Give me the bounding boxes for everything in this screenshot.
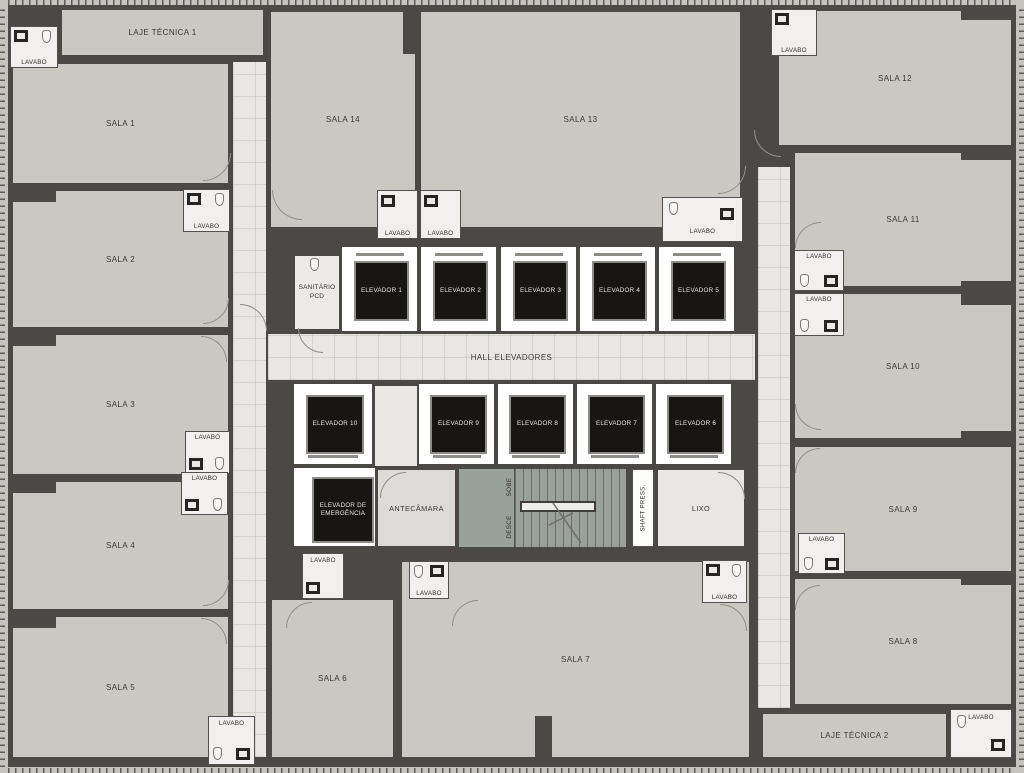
corridor-left	[233, 62, 266, 757]
room-label: SALA 1	[106, 119, 135, 128]
elevator-back-wall	[515, 253, 563, 256]
elevator-1-shaft: ELEVADOR 1	[342, 247, 417, 331]
sink-icon	[706, 564, 720, 576]
lavabo-sala-5: LAVABO	[208, 716, 255, 765]
elevator-back-wall	[673, 253, 721, 256]
elevator-back-wall	[435, 253, 483, 256]
sink-icon	[775, 13, 789, 25]
room-label: SALA 4	[106, 541, 135, 550]
lavabo-sala-4: LAVABO	[181, 472, 228, 515]
toilet-icon	[414, 565, 423, 578]
elevator-1-cab: ELEVADOR 1	[354, 261, 409, 321]
elevator-5-shaft: ELEVADOR 5	[659, 247, 734, 331]
room-laje-tecnica-2: LAJE TÉCNICA 2	[763, 714, 946, 757]
lavabo-label: LAVABO	[410, 590, 448, 597]
room-label: SALA 5	[106, 683, 135, 692]
toilet-icon	[732, 564, 741, 577]
elevator-10-shaft: ELEVADOR 10	[294, 384, 372, 464]
elevator-back-wall	[512, 455, 560, 458]
elevator-label: ELEVADOR 5	[678, 287, 719, 295]
elevator-8-cab: ELEVADOR 8	[509, 395, 566, 454]
toilet-icon	[213, 747, 222, 760]
room-label: SALA 13	[564, 115, 598, 124]
elevator-back-wall	[356, 253, 404, 256]
elevator-label: ELEVADOR 2	[440, 287, 481, 295]
elevator-label: ELEVADOR 3	[520, 287, 561, 295]
lavabo-label: LAVABO	[772, 47, 816, 54]
lavabo-label: LAVABO	[799, 536, 844, 543]
room-label: SALA 14	[326, 115, 360, 124]
room-label: SALA 2	[106, 255, 135, 264]
sink-icon	[381, 195, 395, 207]
stair-direction-arrow	[547, 499, 593, 545]
room-label: SALA 6	[318, 674, 347, 683]
room-label: SALA 9	[888, 505, 917, 514]
lavabo-label: LAVABO	[184, 223, 229, 230]
wall-stub	[961, 281, 1013, 305]
sink-icon	[189, 458, 203, 470]
wall-stub	[8, 5, 58, 27]
elevator-8-shaft: ELEVADOR 8	[498, 384, 573, 464]
elevator-10-cab: ELEVADOR 10	[306, 395, 364, 454]
room-label: HALL ELEVADORES	[471, 353, 553, 362]
stair-down-label: DESCE	[506, 512, 516, 542]
lavabo-sala-10: LAVABO	[794, 293, 844, 336]
elevator-label: ELEVADOR 9	[438, 420, 479, 428]
lavabo-label: LAVABO	[182, 475, 227, 482]
elevator-4-cab: ELEVADOR 4	[592, 261, 647, 321]
room-sala-13: SALA 13	[421, 12, 740, 227]
toilet-icon	[310, 258, 319, 271]
elevator-label: ELEVADOR 4	[599, 287, 640, 295]
sink-icon	[824, 320, 838, 332]
hall-elevadores: HALL ELEVADORES	[268, 334, 755, 380]
room-label: ANTECÂMARA	[389, 504, 444, 513]
sink-icon	[306, 582, 320, 594]
elevator-6-cab: ELEVADOR 6	[667, 395, 724, 454]
elevator-label: ELEVADOR 8	[517, 420, 558, 428]
room-sala-5: SALA 5	[13, 617, 228, 757]
toilet-icon	[800, 319, 809, 332]
wall-stub	[8, 186, 56, 202]
lavabo-sala-3: LAVABO	[185, 431, 230, 474]
lavabo-label: LAVABO	[209, 720, 254, 727]
room-label: SALA 11	[886, 215, 919, 224]
lavabo-sala-12: LAVABO	[771, 9, 817, 56]
lavabo-top-left: LAVABO	[10, 26, 58, 68]
elevator-label: ELEVADOR 10	[313, 420, 358, 428]
emergency-elevator-cab: ELEVADOR DEEMERGÊNCIA	[312, 477, 374, 543]
lavabo-label: LAVABO	[186, 434, 229, 441]
sink-icon	[430, 565, 444, 577]
wall-stub	[535, 716, 552, 760]
lavabo-sala-9: LAVABO	[798, 533, 845, 574]
elevator-7-cab: ELEVADOR 7	[588, 395, 645, 454]
elevator-label: ELEVADOR DEEMERGÊNCIA	[320, 502, 367, 518]
room-label: SALA 10	[886, 362, 920, 371]
wall-stub	[590, 548, 634, 562]
room-label: SALA 12	[878, 74, 912, 83]
elevator-back-wall	[433, 455, 481, 458]
floor-plan: LAJE TÉCNICA 1 SALA 1 SALA 2 SALA 3 SALA…	[0, 0, 1024, 773]
wall-stub	[8, 330, 56, 346]
elevator-label: ELEVADOR 6	[675, 420, 716, 428]
lavabo-label: LAVABO	[421, 230, 460, 237]
stair-up-label: SOBE	[506, 472, 516, 502]
lavabo-sala-2: LAVABO	[183, 189, 230, 232]
elevator-4-shaft: ELEVADOR 4	[580, 247, 655, 331]
wall-stub	[961, 571, 1013, 585]
room-laje-tecnica-1: LAJE TÉCNICA 1	[62, 10, 263, 55]
toilet-icon	[215, 457, 224, 470]
sink-icon	[720, 208, 734, 220]
lavabo-sala-14: LAVABO	[377, 190, 418, 239]
lavabo-sala-11: LAVABO	[794, 250, 844, 291]
toilet-icon	[213, 498, 222, 511]
toilet-icon	[215, 193, 224, 206]
sink-icon	[187, 193, 201, 205]
room-label: SALA 3	[106, 400, 135, 409]
room-label: LAJE TÉCNICA 1	[128, 28, 196, 37]
elevator-6-shaft: ELEVADOR 6	[656, 384, 731, 464]
lavabo-label: LAVABO	[703, 594, 746, 601]
lavabo-sala-7-left: LAVABO	[409, 561, 449, 599]
shaft-label: SHAFT PRESS.	[640, 485, 646, 532]
wall-stub	[961, 146, 1013, 160]
elevator-back-wall	[308, 455, 358, 458]
toilet-icon	[804, 557, 813, 570]
room-label: SANITÁRIOPCD	[299, 284, 336, 302]
lavabo-label: LAVABO	[378, 230, 417, 237]
elevator-7-shaft: ELEVADOR 7	[577, 384, 652, 464]
lavabo-label: LAVABO	[795, 253, 843, 260]
elevator-9-shaft: ELEVADOR 9	[419, 384, 494, 464]
room-label: LIXO	[692, 504, 710, 513]
elevator-back-wall	[670, 455, 718, 458]
hatch-left	[0, 5, 5, 767]
sink-icon	[185, 499, 199, 511]
elevator-label: ELEVADOR 1	[361, 287, 402, 295]
wall-stub	[8, 612, 56, 628]
elevator-5-cab: ELEVADOR 5	[671, 261, 726, 321]
elevator-2-shaft: ELEVADOR 2	[421, 247, 496, 331]
corridor-right	[758, 167, 790, 708]
lavabo-bottom-right: LAVABO	[950, 709, 1012, 758]
wall-stub	[8, 477, 56, 493]
stairwell: SOBE DESCE	[459, 469, 626, 547]
elevator-back-wall	[591, 455, 639, 458]
lavabo-sala-6: LAVABO	[302, 553, 344, 599]
room-label: SALA 8	[888, 637, 917, 646]
room-sala-8: SALA 8	[795, 579, 1011, 704]
lavabo-label: LAVABO	[663, 228, 742, 235]
sink-icon	[825, 558, 839, 570]
sink-icon	[991, 739, 1005, 751]
room-sala-7: SALA 7	[402, 562, 749, 757]
elevator-3-cab: ELEVADOR 3	[513, 261, 568, 321]
room-sala-1: SALA 1	[13, 64, 228, 183]
room-label: SALA 7	[561, 655, 590, 664]
wall-stub	[403, 8, 421, 54]
sink-icon	[236, 748, 250, 760]
elevator-back-wall	[594, 253, 642, 256]
sink-icon	[424, 195, 438, 207]
elevator-label: ELEVADOR 7	[596, 420, 637, 428]
elevator-2-cab: ELEVADOR 2	[433, 261, 488, 321]
room-label: LAJE TÉCNICA 2	[820, 731, 888, 740]
hatch-bottom	[8, 768, 1016, 773]
sink-icon	[14, 30, 28, 42]
elevator-3-shaft: ELEVADOR 3	[501, 247, 576, 331]
elevator-9-cab: ELEVADOR 9	[430, 395, 487, 454]
toilet-icon	[800, 274, 809, 287]
lavabo-label: LAVABO	[951, 714, 1011, 721]
sink-icon	[824, 275, 838, 287]
lavabo-label: LAVABO	[303, 557, 343, 564]
emergency-elevator-shaft: ELEVADOR DEEMERGÊNCIA	[294, 468, 375, 546]
toilet-icon	[669, 202, 678, 215]
lavabo-sala-13-left: LAVABO	[420, 190, 461, 239]
wall-stub	[961, 8, 1013, 20]
lavabo-sala-7-right: LAVABO	[702, 560, 747, 603]
wall-stub	[961, 431, 1013, 447]
lavabo-sala-13: LAVABO	[662, 197, 743, 242]
lavabo-label: LAVABO	[795, 296, 843, 303]
pressurization-shaft: SHAFT PRESS.	[632, 469, 654, 547]
toilet-icon	[42, 30, 51, 43]
hatch-right	[1019, 5, 1024, 767]
lavabo-label: LAVABO	[11, 59, 57, 66]
corridor-core-gap	[375, 386, 417, 466]
